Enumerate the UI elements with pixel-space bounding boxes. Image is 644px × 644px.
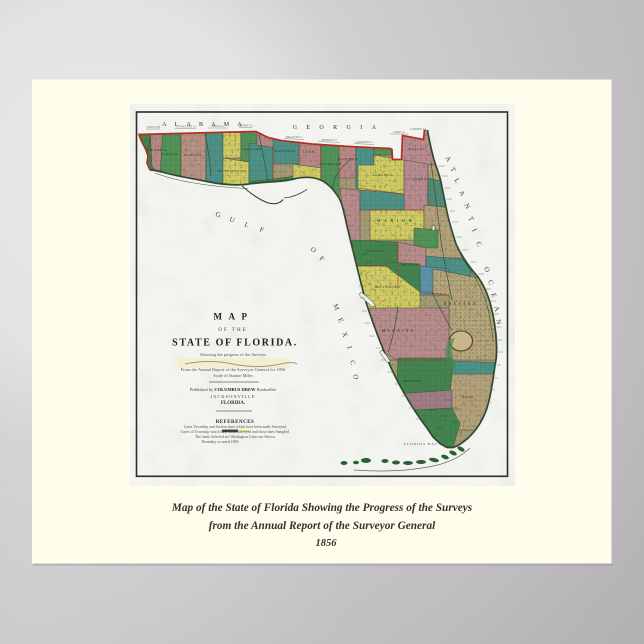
svg-text:OF THE: OF THE [218, 328, 247, 333]
svg-text:B R E V A R D: B R E V A R D [444, 302, 476, 306]
svg-text:The lands Selected are Washing: The lands Selected are Washington Lines … [195, 435, 275, 439]
svg-text:ST JOHNS: ST JOHNS [406, 177, 427, 181]
svg-text:JACKSONVILLE: JACKSONVILLE [210, 394, 255, 399]
svg-text:HILLSBORO: HILLSBORO [375, 285, 400, 289]
svg-text:ALACHUA: ALACHUA [372, 173, 393, 177]
svg-text:ALABAMA: ALABAMA [162, 122, 250, 128]
svg-text:CAMDEN Co: CAMDEN Co [410, 128, 427, 131]
svg-text:NASSAU: NASSAU [408, 147, 426, 151]
svg-text:STATE OF FLORIDA.: STATE OF FLORIDA. [172, 338, 298, 349]
svg-text:M A R I O N: M A R I O N [377, 218, 413, 223]
svg-text:Map of the State of Florida Sh: Map of the State of Florida Showing the … [171, 502, 473, 514]
svg-text:WALTON: WALTON [184, 153, 202, 157]
svg-text:Scale of Statute Miles: Scale of Statute Miles [213, 373, 253, 378]
svg-text:FLORIDA.: FLORIDA. [221, 401, 246, 406]
svg-text:DECATUR Co: DECATUR Co [286, 136, 303, 139]
svg-text:CONECUH: CONECUH [146, 126, 160, 129]
svg-text:Lines of Township which have b: Lines of Township which have been Survey… [181, 430, 289, 434]
svg-text:WASHINGTON: WASHINGTON [217, 169, 246, 173]
svg-text:MAP: MAP [214, 312, 254, 322]
svg-text:WARE Co: WARE Co [393, 131, 405, 134]
svg-text:SUMTER: SUMTER [366, 249, 384, 253]
svg-text:M A N A T E E: M A N A T E E [382, 329, 414, 333]
svg-text:DADE: DADE [462, 395, 474, 399]
svg-text:GADSDEN: GADSDEN [275, 149, 296, 153]
svg-text:GEORGIA: GEORGIA [293, 125, 386, 131]
svg-text:ORANGE: ORANGE [401, 263, 419, 267]
svg-text:Boundary as noted 1856: Boundary as noted 1856 [201, 440, 238, 444]
svg-text:from the Annual Report of the: from the Annual Report of the Surveyor G… [209, 520, 436, 532]
svg-text:1856: 1856 [316, 538, 338, 549]
svg-text:Published by COLUMBUS DREW Boo: Published by COLUMBUS DREW Bookseller [190, 387, 277, 392]
svg-text:LOWNDES Co: LOWNDES Co [355, 141, 373, 144]
svg-text:Lines Township and Section lin: Lines Township and Section lines which h… [184, 425, 286, 429]
svg-text:THOMAS Co: THOMAS Co [321, 139, 337, 142]
svg-text:JACKSON: JACKSON [242, 147, 262, 151]
svg-text:From the Annual Report of the: From the Annual Report of the Surveyor G… [181, 367, 287, 372]
svg-text:JEFFERSON: JEFFERSON [318, 162, 342, 166]
svg-text:S ROSA: S ROSA [162, 152, 178, 156]
svg-text:MONROE: MONROE [403, 379, 422, 383]
svg-text:MADISON: MADISON [338, 157, 358, 161]
svg-text:FLORIDA BAY: FLORIDA BAY [404, 442, 438, 446]
svg-text:Showing the progress of the Su: Showing the progress of the Surveys [200, 352, 266, 357]
svg-text:LEON: LEON [303, 150, 315, 154]
